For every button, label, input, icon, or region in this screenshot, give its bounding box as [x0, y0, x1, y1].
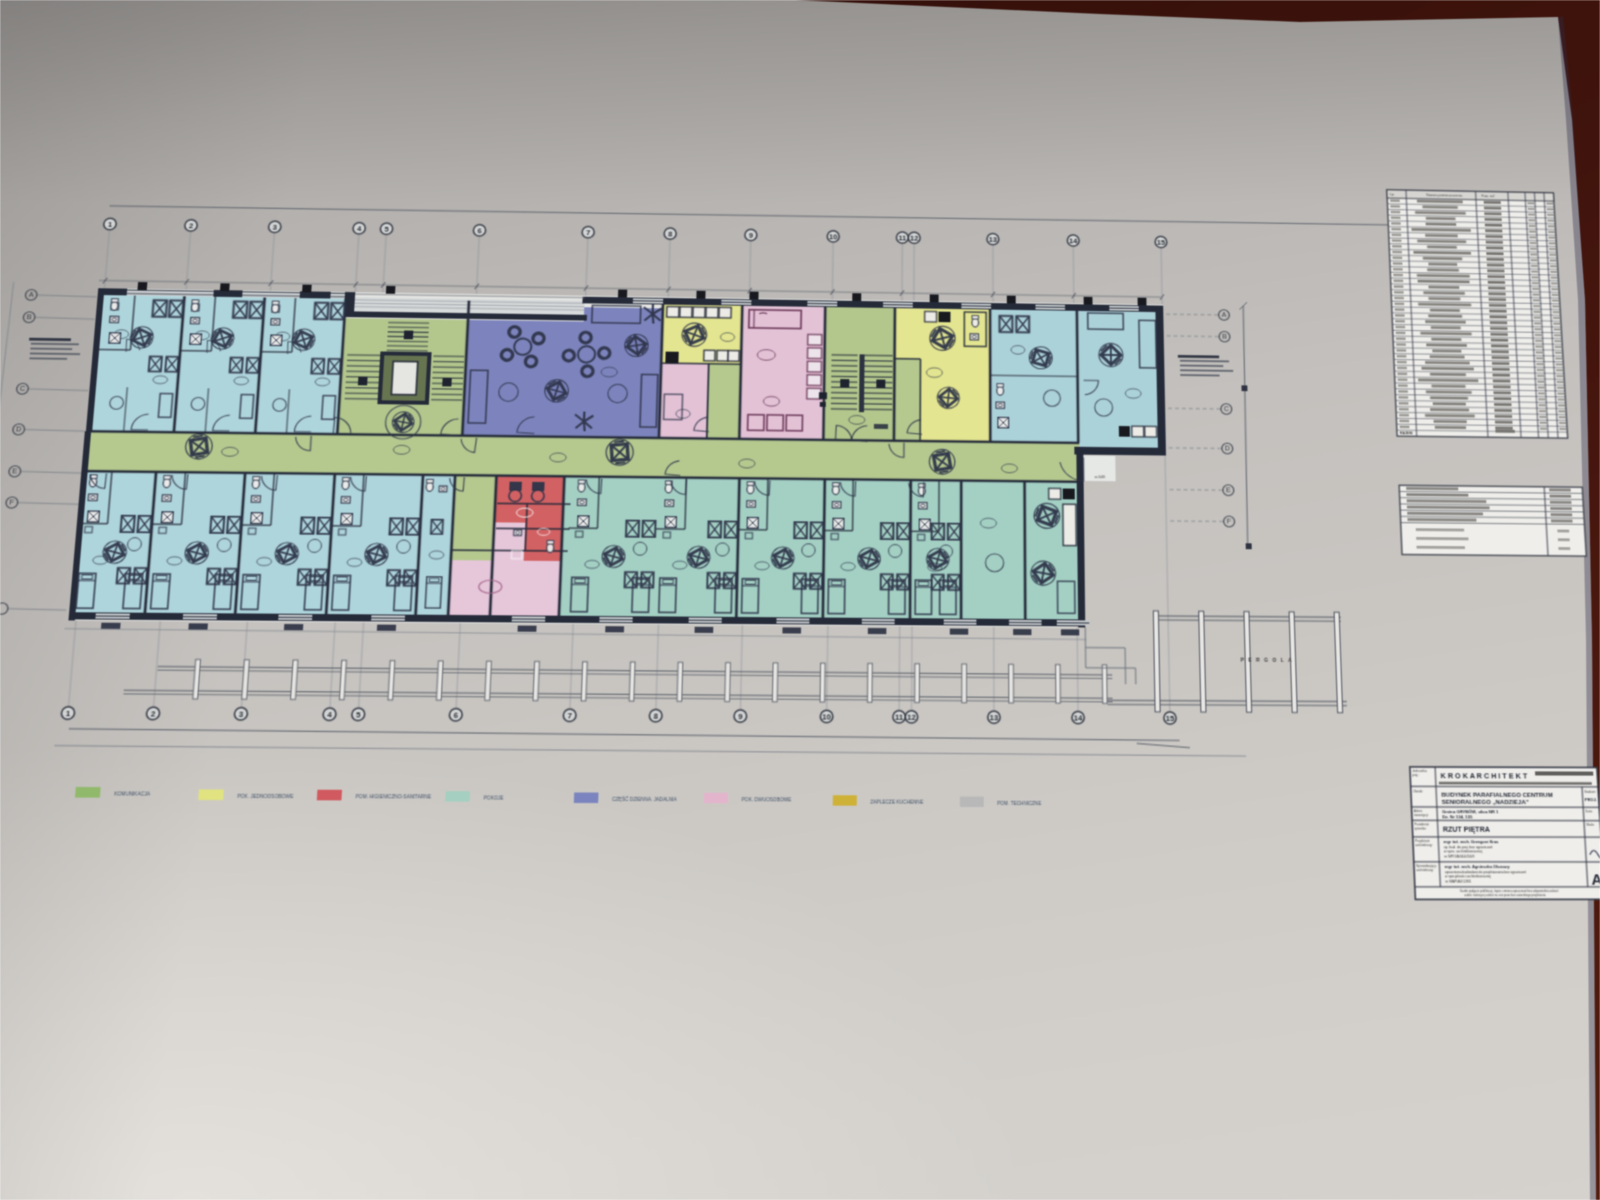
- svg-text:POM. TECHNICZNE: POM. TECHNICZNE: [997, 801, 1041, 806]
- svg-text:3: 3: [238, 709, 243, 719]
- svg-text:6: 6: [453, 710, 458, 720]
- svg-text:PROJ.: PROJ.: [1585, 798, 1597, 802]
- svg-text:3: 3: [272, 222, 277, 231]
- svg-text:architektury:: architektury:: [1416, 868, 1434, 872]
- svg-text:2: 2: [189, 221, 194, 230]
- svg-text:KOMUNIKACJA: KOMUNIKACJA: [114, 791, 150, 797]
- svg-text:1: 1: [65, 708, 70, 718]
- svg-text:ZAPLECZE KUCHENNE: ZAPLECZE KUCHENNE: [870, 799, 923, 805]
- svg-text:14: 14: [1069, 236, 1077, 245]
- svg-text:6: 6: [477, 226, 482, 235]
- svg-text:Data:: Data:: [1585, 809, 1593, 813]
- svg-text:uprawniona budowlane do projek: uprawniona budowlane do projektowania be…: [1445, 870, 1527, 874]
- svg-text:Nazwa pomieszczenia: Nazwa pomieszczenia: [1426, 194, 1463, 198]
- svg-text:Obiekt:: Obiekt:: [1413, 789, 1424, 793]
- svg-text:Pow. m2: Pow. m2: [1481, 195, 1494, 199]
- svg-text:F: F: [1227, 519, 1231, 526]
- svg-text:11: 11: [895, 712, 903, 722]
- svg-text:nr MAP/A/0128/1: nr MAP/A/0128/1: [1445, 879, 1472, 883]
- svg-text:BUDYNEK PARAFIALNEGO CENTRUM: BUDYNEK PARAFIALNEGO CENTRUM: [1441, 792, 1553, 799]
- svg-text:POKOJE: POKOJE: [484, 795, 504, 800]
- svg-text:RAZEM: RAZEM: [1400, 431, 1413, 435]
- svg-text:8: 8: [668, 229, 672, 238]
- svg-text:D: D: [16, 427, 22, 434]
- svg-text:mgr inż. arch. Grzegorz Kras: mgr inż. arch. Grzegorz Kras: [1443, 840, 1498, 844]
- svg-text:C: C: [1224, 406, 1229, 413]
- svg-text:całość należącej całość na rzu: całość należącej całość na rzut praw bez…: [1464, 893, 1546, 897]
- svg-text:rysunku:: rysunku:: [1414, 827, 1427, 831]
- svg-text:C: C: [19, 386, 25, 393]
- svg-text:D: D: [1225, 446, 1230, 453]
- svg-text:nr MPOIA/064/2009: nr MPOIA/064/2009: [1444, 854, 1475, 858]
- svg-text:architektury:: architektury:: [1415, 844, 1433, 848]
- svg-text:5: 5: [384, 224, 389, 233]
- svg-text:2: 2: [150, 709, 155, 719]
- svg-text:Adres: Adres: [1414, 809, 1423, 813]
- svg-text:CZĘŚĆ DZIENNA. JADALNIA: CZĘŚĆ DZIENNA. JADALNIA: [612, 794, 677, 802]
- svg-text:POK. JEDNOOSOBOWE: POK. JEDNOOSOBOWE: [237, 794, 293, 800]
- svg-text:12: 12: [907, 712, 916, 722]
- svg-text:POK. DWUOSOBOWE: POK. DWUOSOBOWE: [742, 797, 792, 803]
- svg-text:Stadium:: Stadium:: [1584, 790, 1596, 794]
- svg-text:F: F: [9, 500, 14, 507]
- svg-text:POM. HIGIENICZNO-SANITARNE: POM. HIGIENICZNO-SANITARNE: [355, 794, 431, 800]
- svg-text:7: 7: [586, 228, 591, 237]
- svg-text:E: E: [12, 469, 18, 476]
- svg-text:mgr inż. arch. Agnieszka Olszo: mgr inż. arch. Agnieszka Olszowy: [1444, 865, 1510, 869]
- svg-text:proj.:: proj.:: [1412, 773, 1419, 777]
- svg-text:4: 4: [327, 709, 332, 719]
- svg-text:10: 10: [829, 232, 837, 241]
- svg-text:RZUT PIĘTRA: RZUT PIĘTRA: [1443, 826, 1490, 834]
- svg-text:w specjalności architektoniczn: w specjalności architektonicznej: [1445, 875, 1491, 879]
- svg-text:1: 1: [107, 220, 112, 229]
- svg-text:10: 10: [822, 712, 831, 722]
- svg-text:w.548: w.548: [1095, 475, 1105, 479]
- svg-text:Skala:: Skala:: [1586, 823, 1595, 827]
- svg-text:Każde podjęcie publikacja, kop: Każde podjęcie publikacja, kopia i zmian…: [1460, 889, 1559, 893]
- svg-text:8: 8: [653, 711, 658, 721]
- svg-text:B: B: [26, 315, 32, 322]
- svg-text:SENIORALNEGO „NADZIEJA”: SENIORALNEGO „NADZIEJA”: [1442, 800, 1530, 807]
- svg-text:A: A: [1222, 312, 1227, 319]
- svg-text:7: 7: [567, 710, 572, 720]
- svg-text:P E R G O L A: P E R G O L A: [1241, 657, 1294, 664]
- svg-text:4: 4: [357, 224, 362, 233]
- svg-text:13: 13: [990, 712, 999, 722]
- svg-text:K R O K A R C H I T E K T: K R O K A R C H I T E K T: [1440, 773, 1528, 781]
- svg-text:13: 13: [989, 235, 997, 244]
- svg-text:B: B: [1222, 334, 1227, 341]
- svg-text:A-4: A-4: [1591, 872, 1600, 889]
- svg-text:9: 9: [749, 231, 753, 240]
- svg-text:15: 15: [1157, 238, 1165, 247]
- svg-text:15: 15: [1166, 713, 1175, 723]
- svg-text:11: 11: [898, 233, 906, 242]
- svg-text:14: 14: [1074, 713, 1083, 723]
- svg-text:Lp.: Lp.: [1390, 193, 1395, 197]
- svg-text:5: 5: [356, 709, 361, 719]
- svg-text:Przedmiot: Przedmiot: [1414, 822, 1429, 826]
- svg-text:Dz. Nr 134, 135: Dz. Nr 134, 135: [1442, 815, 1473, 820]
- svg-text:9: 9: [738, 711, 743, 721]
- svg-text:12: 12: [910, 233, 918, 242]
- svg-text:E: E: [1226, 488, 1231, 495]
- svg-text:Sprawdzający: Sprawdzający: [1416, 864, 1437, 868]
- svg-text:inwestycji:: inwestycji:: [1414, 814, 1429, 818]
- svg-text:A: A: [28, 292, 34, 299]
- svg-text:Projektant: Projektant: [1415, 839, 1430, 843]
